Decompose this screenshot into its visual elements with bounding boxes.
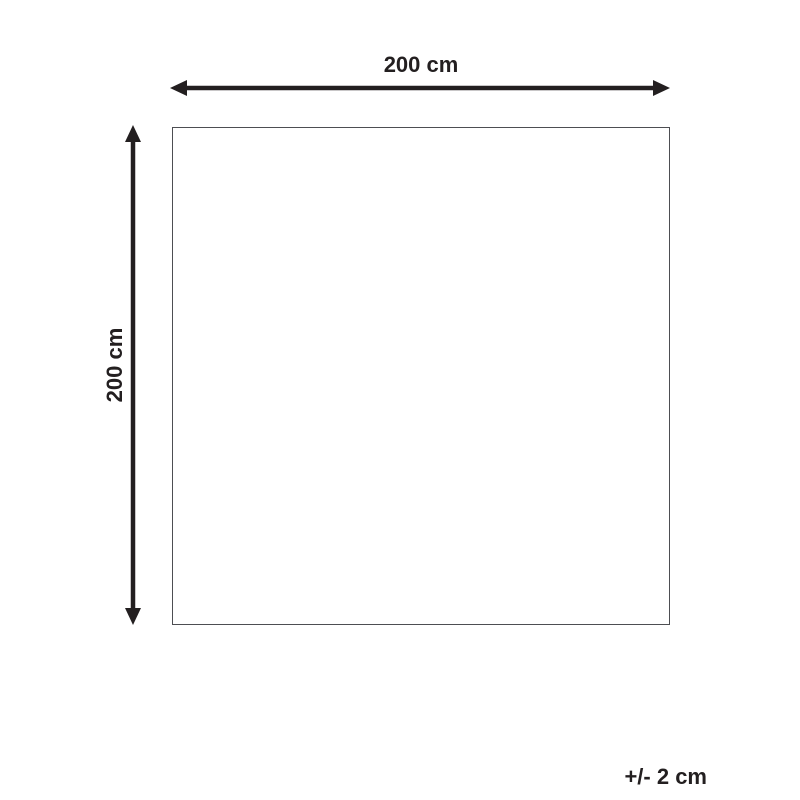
width-dimension-label: 200 cm bbox=[172, 52, 670, 78]
width-arrow-left-head bbox=[170, 80, 187, 96]
height-dimension-arrow-icon bbox=[121, 123, 145, 627]
width-dimension-arrow-icon bbox=[168, 76, 672, 100]
tolerance-label: +/- 2 cm bbox=[624, 764, 707, 790]
dimension-diagram: 200 cm 200 cm +/- 2 cm bbox=[0, 0, 800, 800]
width-arrow-right-head bbox=[653, 80, 670, 96]
product-outline-square bbox=[172, 127, 670, 625]
height-arrow-top-head bbox=[125, 125, 141, 142]
height-arrow-bottom-head bbox=[125, 608, 141, 625]
